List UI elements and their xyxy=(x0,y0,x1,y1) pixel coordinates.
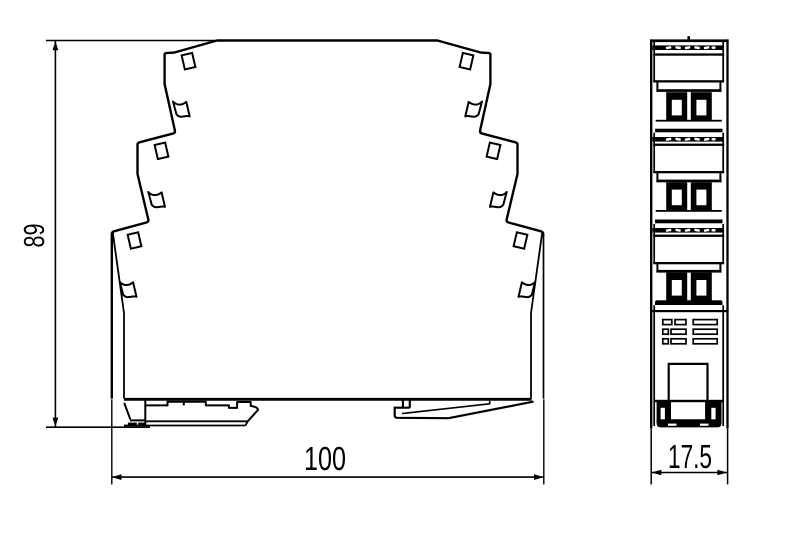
svg-text:89: 89 xyxy=(19,224,51,248)
svg-text:100: 100 xyxy=(304,440,346,477)
svg-text:17.5: 17.5 xyxy=(668,438,712,475)
